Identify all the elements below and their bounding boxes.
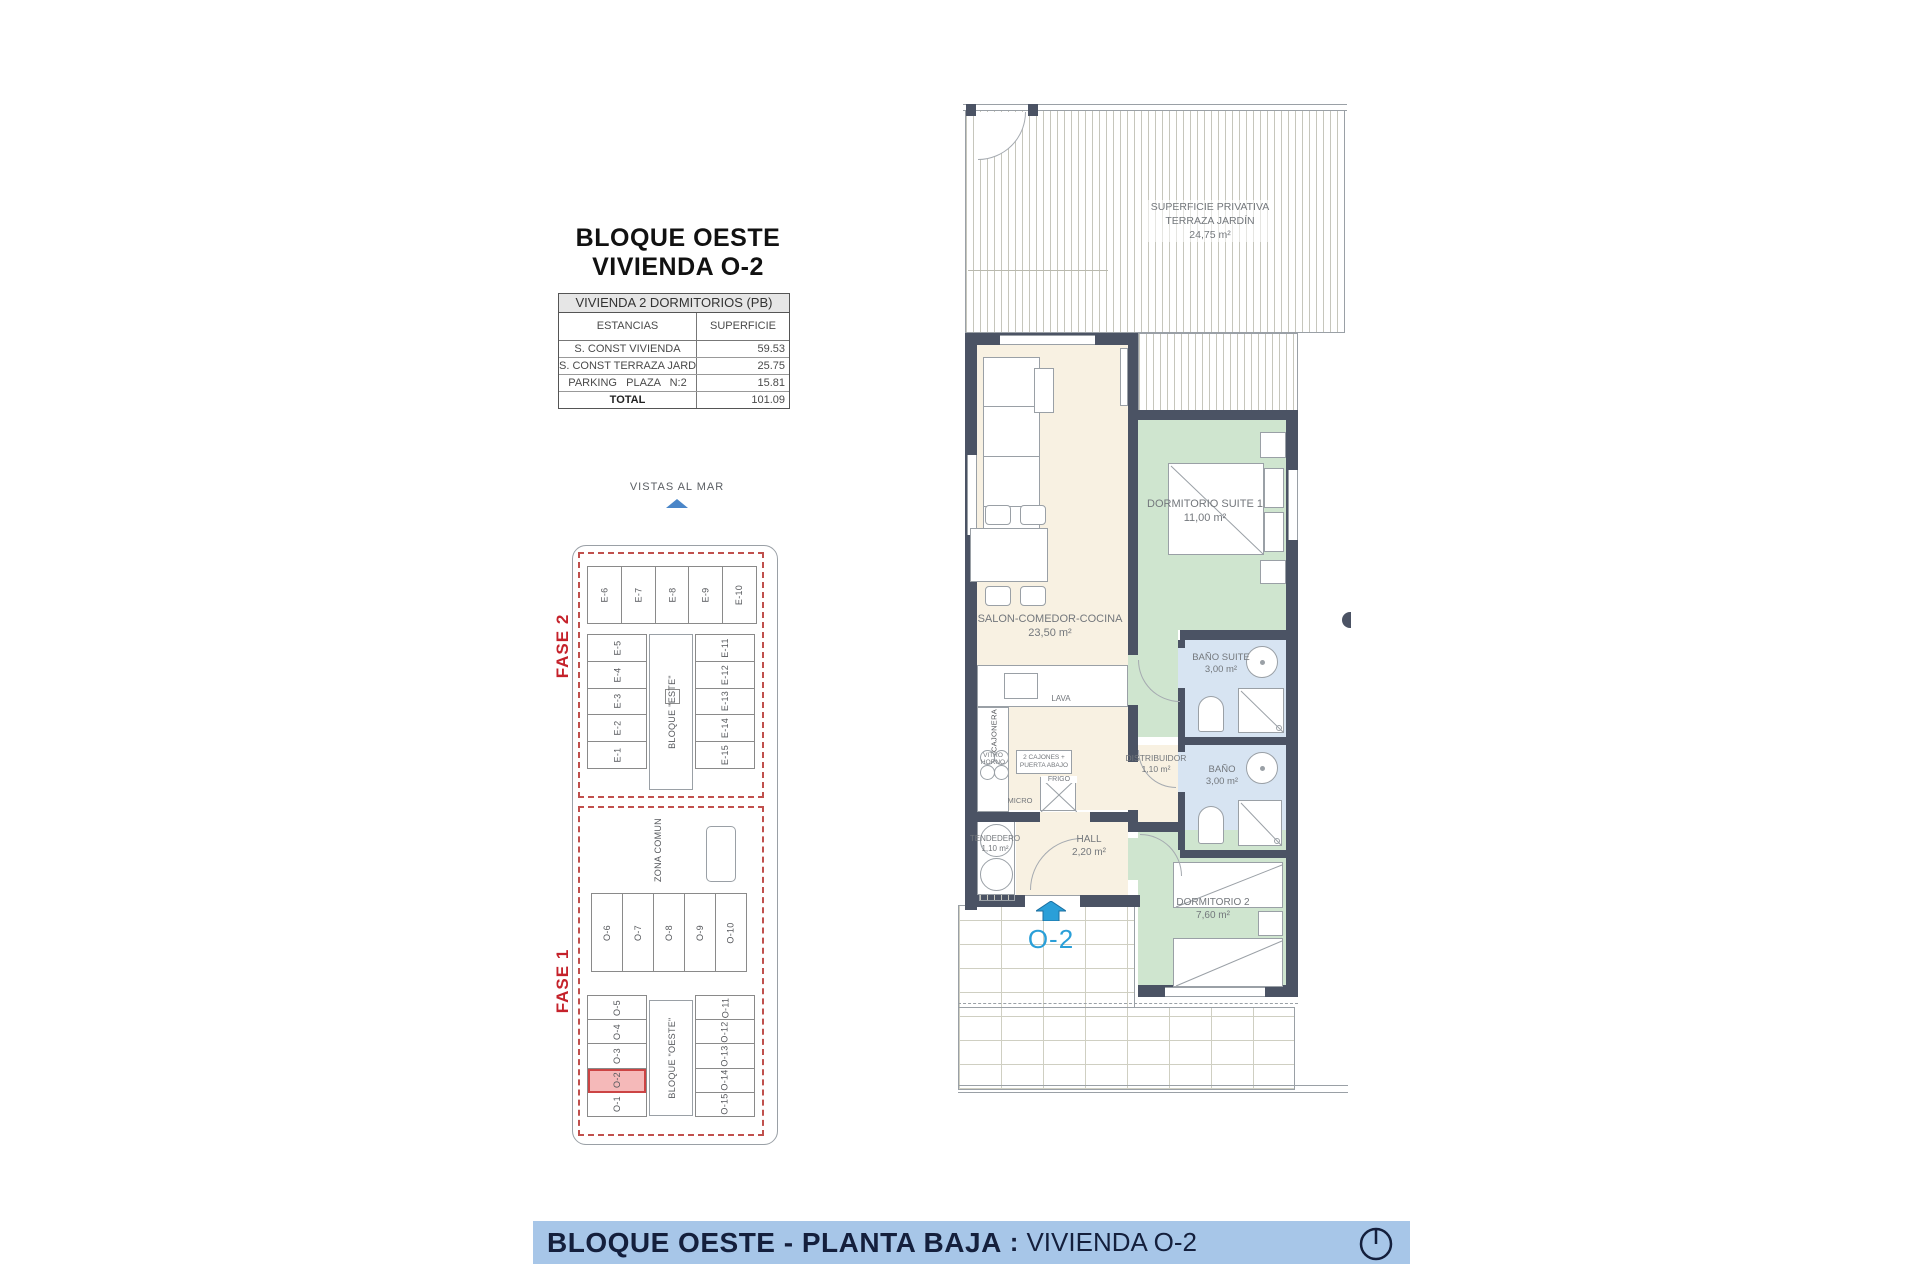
tv-unit xyxy=(1120,348,1128,406)
shower xyxy=(1238,688,1284,733)
unit-cell: E-1 xyxy=(588,742,646,768)
table-row: S. CONST VIVIENDA 59.53 xyxy=(559,341,789,358)
unit-label: E-10 xyxy=(735,585,745,605)
unit-cell: E-11 xyxy=(696,635,754,662)
title-line1: BLOQUE OESTE xyxy=(563,224,793,253)
room-area: 23,50 m² xyxy=(975,626,1125,640)
zona-comun-label: ZONA COMUN xyxy=(653,805,663,895)
unit-cell: O-12 xyxy=(696,1020,754,1044)
pillow xyxy=(1264,468,1284,508)
unit-label: O-8 xyxy=(664,925,674,941)
window xyxy=(1165,987,1265,997)
unit-label: E-5 xyxy=(612,640,622,655)
row-value: 15.81 xyxy=(697,375,789,391)
oeste-mid-row: O-6 O-7 O-8 O-9 O-10 xyxy=(591,893,747,972)
unit-label: O-1 xyxy=(612,1096,622,1112)
footer-title-regular: VIVIENDA O-2 xyxy=(1026,1227,1197,1258)
terrace-step-line xyxy=(968,270,1108,271)
unit-cell: O-9 xyxy=(685,894,716,971)
wall xyxy=(1128,822,1185,832)
unit-label: E-2 xyxy=(612,721,622,736)
unit-cell: E-15 xyxy=(696,742,754,768)
unit-cell: O-4 xyxy=(588,1020,646,1044)
unit-cell: O-11 xyxy=(696,996,754,1020)
room-label-distribuidor: DISTRIBUIDOR 1,10 m² xyxy=(1118,753,1194,775)
house-icon xyxy=(1036,901,1066,921)
unit-label: E-9 xyxy=(701,588,711,603)
room-area: 2,20 m² xyxy=(1056,846,1122,859)
hob-burner xyxy=(980,765,995,780)
unit-cell: E-5 xyxy=(588,635,646,662)
door-opening xyxy=(1128,838,1138,880)
este-right-col: E-11 E-12 E-13 E-14 E-15 xyxy=(695,634,755,769)
pillow xyxy=(1264,512,1284,552)
room-label-bano: BAÑO 3,00 m² xyxy=(1192,764,1252,788)
title-line2: VIVIENDA O-2 xyxy=(563,253,793,282)
room-area: 11,00 m² xyxy=(1145,511,1265,525)
unit-label: E-14 xyxy=(720,718,730,738)
area-table: VIVIENDA 2 DORMITORIOS (PB) ESTANCIAS SU… xyxy=(558,293,790,409)
unit-label: O-11 xyxy=(720,997,730,1018)
unit-label: E-1 xyxy=(612,748,622,763)
door-opening xyxy=(1128,655,1138,705)
dining-table xyxy=(970,528,1048,582)
bloque-este-label: BLOQUE "ESTE" xyxy=(667,672,677,752)
unit-label: E-6 xyxy=(599,588,609,603)
unit-label: O-3 xyxy=(612,1048,622,1064)
room-name: DORMITORIO SUITE 1 xyxy=(1145,497,1265,511)
vistas-al-mar-label: VISTAS AL MAR xyxy=(597,481,757,493)
kitchen-counter: LAVA xyxy=(977,665,1128,707)
este-corridor: BLOQUE "ESTE" xyxy=(649,634,693,790)
unit-cell: O-5 xyxy=(588,996,646,1020)
unit-label: E-4 xyxy=(612,667,622,682)
unit-cell: E-7 xyxy=(622,567,656,623)
table-row-total: TOTAL 101.09 xyxy=(559,392,789,408)
wall xyxy=(1128,333,1138,418)
basin-drain xyxy=(1260,660,1265,665)
unit-cell: O-1 xyxy=(588,1093,646,1116)
room-label-tendedero: TENDEDERO 1,10 m² xyxy=(956,834,1034,854)
unit-cell: O-10 xyxy=(716,894,746,971)
room-name: BAÑO xyxy=(1192,764,1252,776)
unit-label: E-11 xyxy=(720,638,730,658)
unit-label: O-5 xyxy=(612,1000,622,1016)
room-area: 3,00 m² xyxy=(1192,776,1252,788)
unit-cell: E-12 xyxy=(696,662,754,689)
table-row: S. CONST TERRAZA JARDÍN 25.75 xyxy=(559,358,789,375)
unit-label: O-12 xyxy=(720,1021,730,1042)
unit-label: E-8 xyxy=(667,588,677,603)
vent-grille xyxy=(979,894,1015,901)
floor-plan-sheet: BLOQUE OESTE VIVIENDA O-2 VIVIENDA 2 DOR… xyxy=(0,0,1920,1280)
entrance-paving xyxy=(958,1007,1295,1090)
kitchen-sink xyxy=(1004,673,1038,699)
room-name: SALON-COMEDOR-COCINA xyxy=(975,612,1125,626)
unit-label: E-7 xyxy=(633,588,643,603)
bloque-oeste-label: BLOQUE "OESTE" xyxy=(667,1013,677,1103)
unit-marker-label: O-2 xyxy=(1021,924,1081,955)
footer-separator: : xyxy=(1010,1227,1019,1258)
shower-line xyxy=(1239,801,1283,847)
row-label: PARKING PLAZA N:2 xyxy=(559,375,697,391)
hob-burner xyxy=(994,765,1009,780)
room-name: DISTRIBUIDOR xyxy=(1118,753,1194,764)
pool-shape xyxy=(706,826,736,882)
dishwasher-label: LAVA xyxy=(1040,694,1082,703)
unit-label: O-2 xyxy=(612,1072,622,1088)
room-label-terraza: SUPERFICIE PRIVATIVA TERRAZA JARDÍN 24,7… xyxy=(1148,200,1272,242)
room-area: 1,10 m² xyxy=(1118,764,1194,775)
vitro-horno-label: VITRO HORNO xyxy=(978,752,1008,766)
oeste-right-col: O-11 O-12 O-13 O-14 O-15 xyxy=(695,995,755,1117)
room-label-hall: HALL 2,20 m² xyxy=(1056,833,1122,859)
unit-label: E-3 xyxy=(612,694,622,709)
unit-cell: E-6 xyxy=(588,567,622,623)
toilet xyxy=(1198,806,1224,844)
fridge-x-icon xyxy=(1041,778,1077,812)
row-label: S. CONST TERRAZA JARDÍN xyxy=(559,358,697,374)
unit-label: O-6 xyxy=(602,925,612,941)
unit-cell: E-8 xyxy=(656,567,690,623)
cajones-note: 2 CAJONES + PUERTA ABAJO xyxy=(1016,750,1072,774)
unit-cell: O-3 xyxy=(588,1044,646,1068)
window xyxy=(1288,470,1298,540)
plot-dashed-line xyxy=(958,1003,1298,1004)
nightstand xyxy=(1260,560,1286,584)
room-name: TENDEDERO xyxy=(956,834,1034,844)
shower-line xyxy=(1239,689,1285,734)
unit-cell: E-14 xyxy=(696,715,754,742)
fridge: FRIGO xyxy=(1040,777,1076,811)
footer-title-bold: BLOQUE OESTE - PLANTA BAJA xyxy=(547,1227,1002,1259)
wall xyxy=(1180,630,1298,640)
unit-label: O-14 xyxy=(720,1070,730,1091)
unit-cell: O-13 xyxy=(696,1044,754,1068)
sofa xyxy=(983,357,1040,557)
oeste-corridor: BLOQUE "OESTE" xyxy=(649,1000,693,1116)
unit-cell: E-4 xyxy=(588,662,646,689)
fase2-label: FASE 2 xyxy=(553,596,569,696)
unit-cell: E-9 xyxy=(689,567,723,623)
terrace-post xyxy=(966,104,976,116)
col-superficie: SUPERFICIE xyxy=(697,313,789,340)
room-name: SUPERFICIE PRIVATIVA TERRAZA JARDÍN xyxy=(1148,200,1272,228)
bed-single xyxy=(1173,938,1283,987)
unit-label: E-13 xyxy=(720,691,730,711)
bed-cover-line xyxy=(1174,939,1284,988)
washing-machine xyxy=(980,858,1013,891)
nightstand xyxy=(1260,432,1286,458)
area-table-columns: ESTANCIAS SUPERFICIE xyxy=(559,313,789,341)
room-name: HALL xyxy=(1056,833,1122,846)
room-label-bano-suite: BAÑO SUITE 3,00 m² xyxy=(1186,652,1256,676)
unit-cell: O-6 xyxy=(592,894,623,971)
room-area: 24,75 m² xyxy=(1148,228,1272,242)
unit-cell-highlighted: O-2 xyxy=(588,1069,646,1093)
room-area: 7,60 m² xyxy=(1158,909,1268,922)
frigo-label: FRIGO xyxy=(1041,776,1077,783)
unit-label: O-15 xyxy=(720,1094,730,1115)
room-name: BAÑO SUITE xyxy=(1186,652,1256,664)
unit-cell: E-3 xyxy=(588,689,646,716)
wall xyxy=(1138,410,1298,420)
room-label-dormitorio-2: DORMITORIO 2 7,60 m² xyxy=(1158,896,1268,922)
terrace-area-side xyxy=(1138,333,1298,418)
unit-cell: O-7 xyxy=(623,894,654,971)
unit-label: O-13 xyxy=(720,1045,730,1066)
row-label: TOTAL xyxy=(559,392,697,408)
oeste-left-col: O-5 O-4 O-3 O-2 O-1 xyxy=(587,995,647,1117)
unit-cell: E-2 xyxy=(588,715,646,742)
toilet xyxy=(1198,696,1224,732)
row-value: 101.09 xyxy=(697,392,789,408)
este-top-row: E-6 E-7 E-8 E-9 E-10 xyxy=(587,566,757,624)
unit-cell: E-13 xyxy=(696,689,754,716)
table-row: PARKING PLAZA N:2 15.81 xyxy=(559,375,789,392)
unit-cell: O-14 xyxy=(696,1069,754,1093)
basin-drain xyxy=(1260,766,1265,771)
drain-nub xyxy=(1342,612,1351,628)
room-area: 3,00 m² xyxy=(1186,664,1256,676)
room-label-dormitorio-suite: DORMITORIO SUITE 1 11,00 m² xyxy=(1145,497,1265,525)
terrace-post xyxy=(1028,104,1038,116)
window xyxy=(967,455,977,535)
chair xyxy=(985,586,1011,606)
unit-label: O-7 xyxy=(633,925,643,941)
wall xyxy=(1180,737,1298,745)
room-label-salon: SALON-COMEDOR-COCINA 23,50 m² xyxy=(975,612,1125,640)
chair xyxy=(1020,505,1046,525)
coffee-table xyxy=(1034,368,1054,413)
unit-label: E-15 xyxy=(720,745,730,765)
area-table-header: VIVIENDA 2 DORMITORIOS (PB) xyxy=(559,294,789,313)
unit-label: O-4 xyxy=(612,1024,622,1040)
unit-label: O-10 xyxy=(726,922,736,943)
footer-title-bar: BLOQUE OESTE - PLANTA BAJA : VIVIENDA O-… xyxy=(533,1221,1410,1264)
shower xyxy=(1238,800,1282,846)
room-area: 1,10 m² xyxy=(956,844,1034,854)
window xyxy=(1000,335,1095,345)
row-value: 25.75 xyxy=(697,358,789,374)
unit-label: E-12 xyxy=(720,665,730,685)
page-title: BLOQUE OESTE VIVIENDA O-2 xyxy=(563,224,793,282)
sea-direction-icon xyxy=(666,499,688,508)
row-label: S. CONST VIVIENDA xyxy=(559,341,697,357)
plot-edge-line xyxy=(958,1085,1348,1093)
unit-cell: E-10 xyxy=(723,567,756,623)
unit-cell: O-15 xyxy=(696,1093,754,1116)
fase1-label: FASE 1 xyxy=(553,931,569,1031)
wall xyxy=(1180,850,1298,858)
chair xyxy=(985,505,1011,525)
north-compass-icon xyxy=(1356,1223,1396,1263)
unit-cell: O-8 xyxy=(654,894,685,971)
chair xyxy=(1020,586,1046,606)
col-estancias: ESTANCIAS xyxy=(559,313,697,340)
este-left-col: E-5 E-4 E-3 E-2 E-1 xyxy=(587,634,647,769)
unit-label: O-9 xyxy=(695,925,705,941)
room-name: DORMITORIO 2 xyxy=(1158,896,1268,909)
door-opening xyxy=(1040,812,1090,822)
row-value: 59.53 xyxy=(697,341,789,357)
micro-label: MICRO xyxy=(1000,796,1040,805)
